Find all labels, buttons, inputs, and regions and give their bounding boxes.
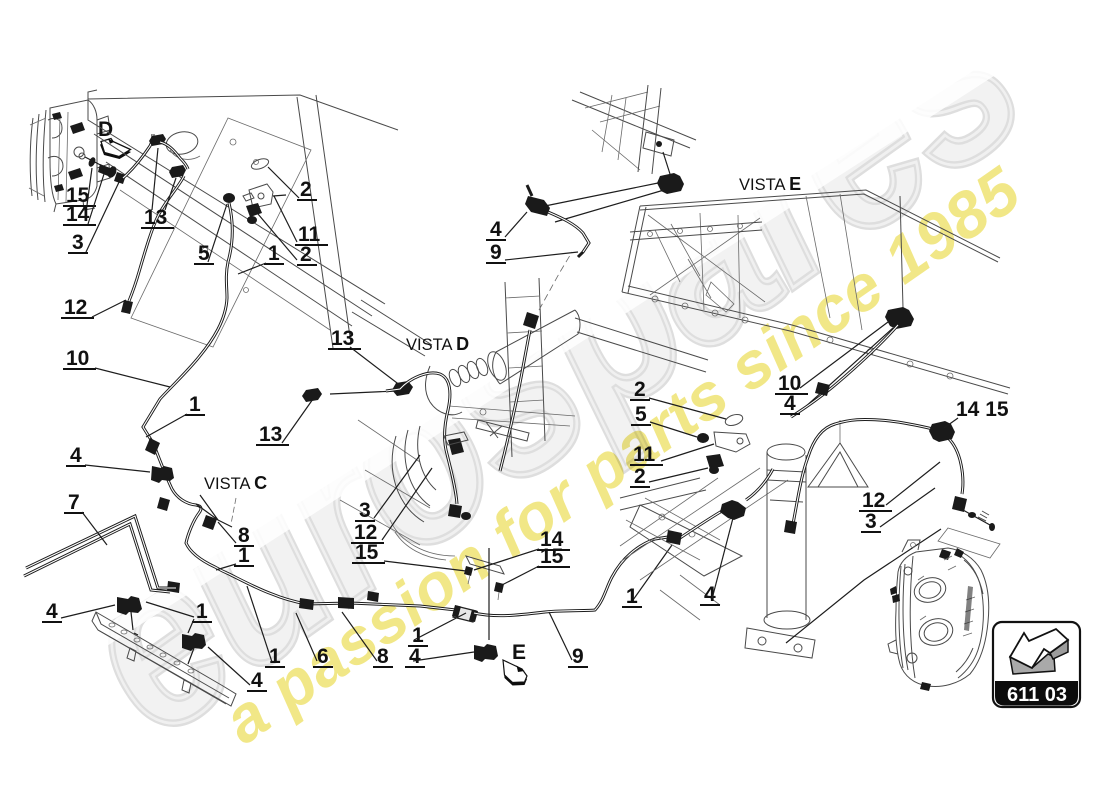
- svg-text:4: 4: [70, 444, 82, 467]
- svg-text:3: 3: [865, 510, 877, 533]
- svg-text:12: 12: [862, 489, 885, 512]
- svg-text:4: 4: [409, 645, 421, 668]
- svg-text:1: 1: [189, 393, 201, 416]
- svg-text:2: 2: [300, 243, 312, 266]
- svg-text:9: 9: [490, 241, 502, 264]
- svg-text:15: 15: [355, 541, 379, 564]
- svg-text:11: 11: [633, 443, 656, 466]
- svg-text:E: E: [512, 641, 526, 664]
- svg-text:9: 9: [572, 645, 584, 668]
- svg-text:1: 1: [196, 600, 208, 623]
- svg-text:4: 4: [784, 392, 796, 415]
- svg-text:3: 3: [72, 231, 84, 254]
- svg-text:4: 4: [490, 218, 502, 241]
- svg-text:4: 4: [46, 600, 58, 623]
- svg-text:2: 2: [300, 178, 312, 201]
- svg-text:15: 15: [540, 545, 564, 568]
- svg-text:VISTA D: VISTA D: [406, 334, 469, 354]
- svg-text:13: 13: [259, 423, 282, 446]
- svg-text:VISTA E: VISTA E: [739, 174, 801, 194]
- svg-text:10: 10: [66, 347, 89, 370]
- svg-text:13: 13: [144, 206, 167, 229]
- svg-text:12: 12: [354, 521, 377, 544]
- svg-text:14: 14: [66, 203, 90, 226]
- svg-text:2: 2: [634, 378, 646, 401]
- svg-text:1: 1: [238, 544, 250, 567]
- svg-text:1: 1: [626, 585, 638, 608]
- svg-text:611 03: 611 03: [1007, 684, 1067, 706]
- svg-text:8: 8: [377, 645, 389, 668]
- svg-text:4: 4: [704, 583, 716, 606]
- svg-text:14 15: 14 15: [956, 398, 1009, 421]
- svg-text:7: 7: [68, 491, 80, 514]
- svg-text:12: 12: [64, 296, 87, 319]
- svg-text:5: 5: [635, 403, 647, 426]
- svg-text:VISTA C: VISTA C: [204, 473, 267, 493]
- svg-text:3: 3: [359, 499, 371, 522]
- svg-text:1: 1: [268, 242, 280, 265]
- svg-text:4: 4: [251, 669, 263, 692]
- svg-text:13: 13: [331, 327, 354, 350]
- svg-text:6: 6: [317, 645, 329, 668]
- svg-text:2: 2: [634, 465, 646, 488]
